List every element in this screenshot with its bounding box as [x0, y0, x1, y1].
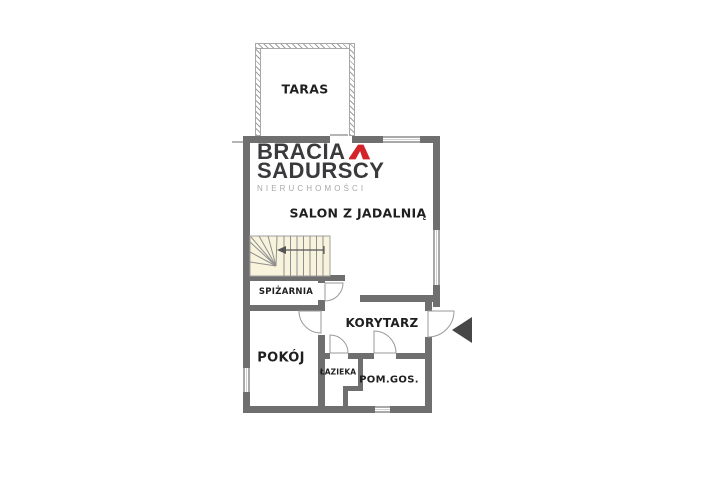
door-arc-pokoj — [299, 311, 321, 333]
taras-wall-right — [349, 43, 355, 136]
window-bottom-pomgos — [375, 406, 390, 413]
stairs-winder-treads — [250, 236, 277, 266]
room-label-korytarz: KORYTARZ — [345, 316, 418, 330]
room-label-salon: SALON Z JADALNIĄ — [290, 206, 427, 221]
entrance-arrow-icon — [452, 317, 472, 343]
room-label-lazienka: ŁAZIEKA — [320, 368, 356, 377]
plan-symbols-layer — [0, 0, 710, 494]
wall-stairs-bottom — [243, 275, 345, 281]
wall-spizarnia-bottom — [243, 305, 325, 311]
wall-lazienka-pomgos-vert2 — [343, 390, 348, 406]
window-glass-line — [246, 368, 247, 392]
wall-spizarnia-right-top — [318, 275, 325, 283]
taras-wall-top — [255, 43, 355, 49]
wall-bottom — [243, 406, 432, 413]
room-label-pomgos: POM.GOS. — [359, 375, 419, 386]
taras-door-threshold — [330, 134, 348, 136]
stairs-direction-arrow — [277, 246, 324, 254]
window-glass-line — [436, 230, 437, 285]
window-sill-stub — [232, 141, 243, 143]
room-label-taras: TARAS — [281, 82, 328, 97]
stairs-straight-treads — [284, 236, 323, 276]
window-right-salon — [433, 230, 440, 285]
wall-salon-korytarz — [360, 295, 440, 302]
stairs-outline — [250, 236, 330, 276]
taras-wall-left — [255, 43, 261, 136]
window-left-pokoj — [243, 368, 250, 392]
window-glass-line — [375, 409, 390, 410]
door-arc-spizarnia — [325, 283, 343, 301]
logo: BRACIA SADURSCY NIERUCHOMOŚCI — [257, 142, 407, 193]
window-glass-line — [383, 139, 420, 140]
wall-right-korytarz-bottom — [425, 337, 432, 413]
door-arc-lazienka — [330, 335, 348, 353]
wall-korytarz-south-a — [325, 353, 330, 359]
logo-tagline: NIERUCHOMOŚCI — [257, 184, 407, 193]
wall-right-korytarz-top — [425, 302, 432, 311]
room-label-pokoj: POKÓJ — [257, 351, 304, 366]
wall-korytarz-south-c — [396, 353, 425, 359]
wall-spizarnia-right-bottom — [318, 300, 325, 311]
door-arc-entrance — [428, 311, 454, 337]
room-label-spizarnia: SPIŻARNIA — [259, 287, 313, 297]
logo-name-line2: SADURSCY — [257, 161, 407, 180]
stairs — [250, 236, 330, 276]
floorplan: BRACIA SADURSCY NIERUCHOMOŚCI TARAS SALO… — [0, 0, 710, 494]
door-arc-pomgos — [374, 331, 396, 353]
